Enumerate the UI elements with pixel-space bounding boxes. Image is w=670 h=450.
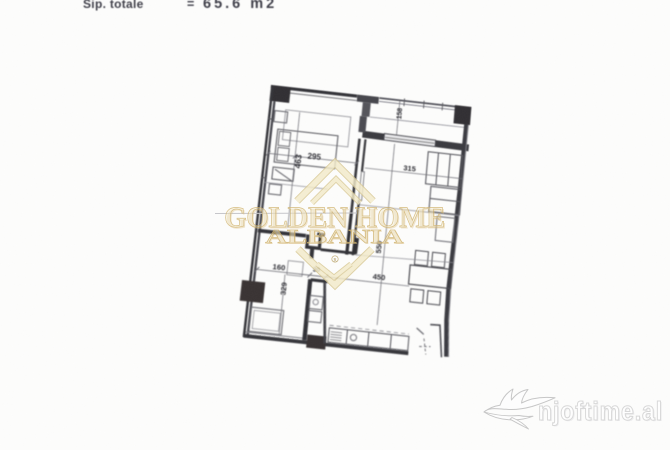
svg-text:ALBANIA: ALBANIA: [265, 227, 403, 248]
svg-text:njoftime.al: njoftime.al: [538, 398, 663, 426]
